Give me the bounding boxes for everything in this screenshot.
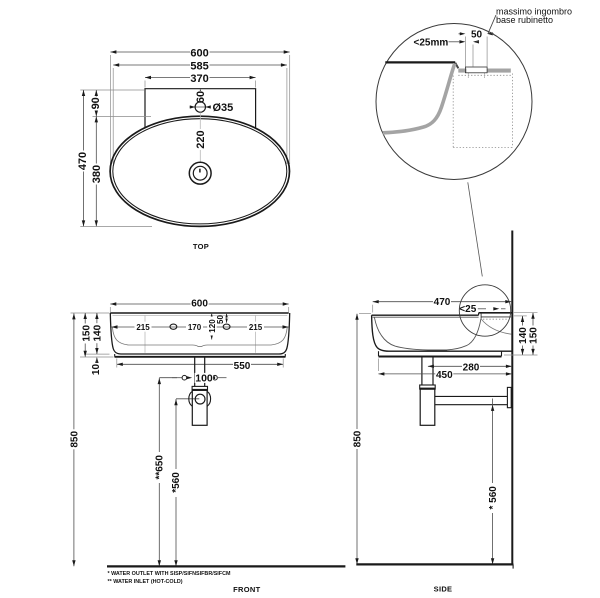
svg-text:10: 10 xyxy=(91,364,102,376)
svg-text:60: 60 xyxy=(195,91,207,103)
svg-text:SIDE: SIDE xyxy=(434,585,453,594)
svg-text:170: 170 xyxy=(188,323,202,332)
svg-text:90: 90 xyxy=(90,97,102,109)
svg-text:140: 140 xyxy=(518,327,529,344)
svg-text:*560: *560 xyxy=(171,472,182,493)
svg-text:50: 50 xyxy=(471,30,483,41)
svg-text:280: 280 xyxy=(463,362,480,373)
svg-text:Ø35: Ø35 xyxy=(213,102,234,114)
svg-text:100: 100 xyxy=(195,372,213,384)
svg-text:370: 370 xyxy=(190,73,208,85)
svg-text:<25: <25 xyxy=(459,304,476,315)
svg-text:FRONT: FRONT xyxy=(233,585,260,594)
svg-text:50: 50 xyxy=(216,315,225,324)
svg-text:base rubinetto: base rubinetto xyxy=(496,15,553,25)
svg-text:600: 600 xyxy=(191,299,208,310)
svg-text:150: 150 xyxy=(82,325,93,342)
svg-text:380: 380 xyxy=(91,165,103,183)
svg-text:585: 585 xyxy=(190,60,208,72)
svg-text:**650: **650 xyxy=(154,455,165,480)
svg-text:550: 550 xyxy=(234,361,251,372)
svg-text:TOP: TOP xyxy=(193,242,209,251)
svg-text:215: 215 xyxy=(249,323,263,332)
svg-text:470: 470 xyxy=(77,152,89,170)
svg-text:215: 215 xyxy=(136,323,150,332)
svg-text:450: 450 xyxy=(436,370,453,381)
svg-text:470: 470 xyxy=(434,297,451,308)
svg-text:220: 220 xyxy=(195,130,207,148)
svg-text:* WATER OUTLET WITH SISP/SIFN: * WATER OUTLET WITH SISP/SIFNSIFBR/SIFCM xyxy=(108,571,231,577)
svg-text:<25mm: <25mm xyxy=(414,37,449,48)
svg-text:** WATER INLET (HOT-COLD): ** WATER INLET (HOT-COLD) xyxy=(108,579,183,585)
svg-text:150: 150 xyxy=(529,327,540,344)
svg-text:600: 600 xyxy=(190,47,208,59)
svg-text:140: 140 xyxy=(92,324,103,341)
svg-text:* 560: * 560 xyxy=(488,486,499,510)
svg-text:850: 850 xyxy=(70,431,81,448)
svg-text:850: 850 xyxy=(352,430,363,447)
